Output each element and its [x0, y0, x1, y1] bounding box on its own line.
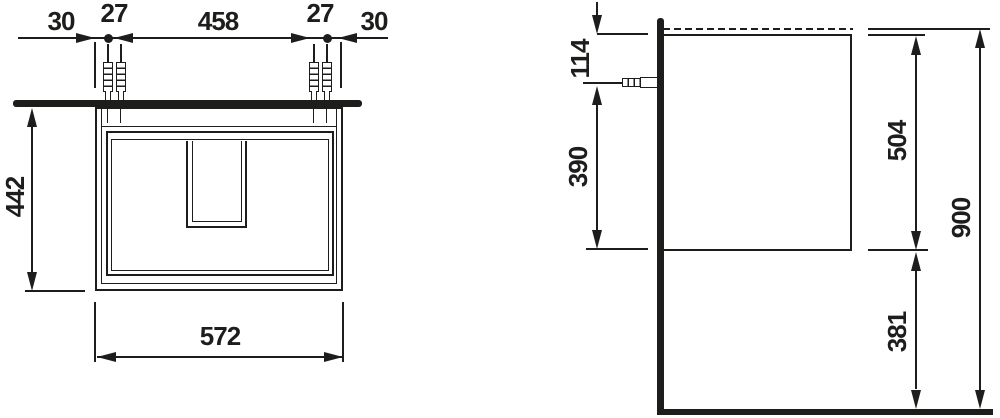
clearance-dimension-line [915, 271, 916, 389]
dim-label-504: 504 [883, 99, 911, 183]
wall-anchor-collar-icon [640, 77, 658, 88]
dimension-arrow-up-icon [911, 252, 921, 271]
dim-label-900: 900 [947, 176, 975, 260]
extension-line-cabinet-bottom [868, 249, 928, 250]
anchor-dimension-line [596, 105, 597, 230]
dim-label-390: 390 [564, 125, 592, 209]
extension-line-countertop-level [597, 33, 648, 34]
body-height-dimension-line [915, 55, 916, 231]
dimension-arrow-down-icon [592, 230, 602, 249]
countertop-hidden-edge [663, 28, 853, 30]
dim-label-114: 114 [566, 17, 594, 101]
cabinet-front-line [850, 34, 852, 251]
overall-height-dimension-line [979, 48, 980, 390]
wall-anchor-side-icon [622, 78, 641, 87]
extension-line-cabinet-bottom-level [586, 248, 648, 249]
floor [657, 409, 993, 416]
cabinet-top-line [663, 34, 852, 36]
cabinet-bottom-line [663, 249, 852, 252]
dimension-arrow-up-icon [592, 86, 602, 105]
dimension-arrow-down-icon [975, 390, 985, 409]
dim-label-381: 381 [883, 290, 911, 374]
side-view: 114 390 504 381 900 [0, 0, 1000, 418]
dimension-line-tail [596, 2, 597, 15]
extension-line-top-overall [868, 28, 990, 29]
technical-drawing: 30 27 458 27 30 [0, 0, 1000, 418]
dimension-arrow-down-icon [911, 390, 921, 409]
dimension-arrow-up-icon [911, 36, 921, 55]
dimension-arrow-up-icon [975, 29, 985, 48]
dimension-arrow-down-icon [911, 231, 921, 250]
